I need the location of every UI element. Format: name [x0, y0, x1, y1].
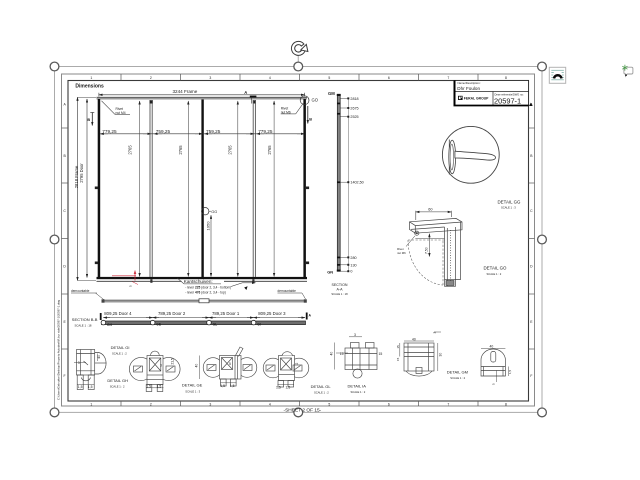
- svg-text:3: 3: [78, 361, 80, 365]
- svg-text:SCALE 1 : 2: SCALE 1 : 2: [487, 272, 502, 276]
- svg-text:8: 8: [505, 402, 507, 406]
- svg-text:2818: 2818: [350, 97, 358, 101]
- svg-text:- lever 476 (door 2, 3,4 - top: - lever 476 (door 2, 3,4 - top): [185, 291, 226, 295]
- svg-text:demountable: demountable: [278, 289, 297, 293]
- svg-text:B: B: [309, 118, 312, 122]
- svg-text:GL: GL: [213, 322, 218, 326]
- svg-text:1: 1: [90, 76, 92, 80]
- svg-text:2: 2: [295, 363, 299, 365]
- svg-text:759,25: 759,25: [156, 129, 171, 134]
- svg-text:3: 3: [209, 76, 211, 80]
- svg-text:SCALE 1 : 2: SCALE 1 : 2: [351, 390, 366, 394]
- svg-text:SCALE 1 : 18: SCALE 1 : 18: [331, 292, 348, 296]
- svg-text:779,25: 779,25: [258, 129, 273, 134]
- svg-text:Dimensions: Dimensions: [75, 83, 104, 89]
- svg-text:C:\Users\Gebruiker\Desktop\Pro: C:\Users\Gebruiker\Desktop\Property Auto…: [57, 299, 61, 400]
- svg-text:4: 4: [269, 402, 271, 406]
- svg-text:DETAIL GE: DETAIL GE: [182, 383, 203, 388]
- svg-text:- lever 225 (door 2, 3,4 - bot: - lever 225 (door 2, 3,4 - bottom): [185, 286, 231, 290]
- svg-text:21,5: 21,5: [171, 358, 175, 364]
- svg-text:3: 3: [354, 333, 356, 337]
- svg-text:A: A: [244, 90, 247, 95]
- svg-text:A-A: A-A: [337, 288, 344, 292]
- svg-text:15: 15: [379, 352, 383, 356]
- svg-text:2765: 2765: [227, 145, 232, 155]
- svg-text:GN: GN: [327, 269, 333, 274]
- svg-text:Dhr Foulon: Dhr Foulon: [457, 86, 480, 91]
- svg-text:Kantschuiven:: Kantschuiven:: [184, 279, 213, 284]
- svg-text:2795 Door: 2795 Door: [79, 163, 84, 183]
- svg-text:DETAIL GG: DETAIL GG: [498, 200, 522, 205]
- svg-text:1,5: 1,5: [78, 385, 83, 389]
- svg-text:7,50: 7,50: [425, 247, 429, 254]
- svg-text:GO: GO: [312, 98, 319, 103]
- svg-text:779,25: 779,25: [102, 129, 117, 134]
- svg-text:SCALE 1 : 2: SCALE 1 : 2: [110, 384, 125, 388]
- svg-text:2765: 2765: [267, 145, 272, 155]
- svg-text:2765: 2765: [178, 145, 183, 155]
- svg-text:DETAIL GO: DETAIL GO: [484, 265, 508, 270]
- svg-text:2525: 2525: [350, 115, 358, 119]
- svg-text:1,5: 1,5: [146, 385, 151, 389]
- svg-text:5: 5: [229, 362, 231, 366]
- svg-text:1402,50: 1402,50: [350, 181, 363, 185]
- svg-text:GE: GE: [156, 322, 162, 326]
- svg-text:60: 60: [428, 208, 432, 212]
- svg-text:nut M6: nut M6: [281, 110, 291, 114]
- svg-text:-SHEET 2 OF 15-: -SHEET 2 OF 15-: [284, 408, 322, 414]
- svg-text:3: 3: [209, 402, 211, 406]
- svg-text:SCALE 1 : 2: SCALE 1 : 2: [450, 376, 465, 380]
- svg-text:4: 4: [269, 76, 271, 80]
- svg-text:SCALE 1 : 2: SCALE 1 : 2: [112, 351, 127, 355]
- svg-text:demountable: demountable: [71, 289, 90, 293]
- svg-text:15: 15: [340, 352, 344, 356]
- svg-text:SECTION B-B: SECTION B-B: [72, 317, 98, 322]
- svg-text:F: F: [530, 374, 532, 378]
- svg-text:1,5: 1,5: [508, 369, 512, 374]
- svg-text:40: 40: [490, 344, 494, 348]
- svg-text:DETAIL GH: DETAIL GH: [107, 378, 128, 383]
- svg-text:15: 15: [396, 345, 400, 349]
- svg-text:3: 3: [433, 332, 437, 334]
- svg-text:6: 6: [388, 402, 390, 406]
- svg-text:SCALE 1 : 3: SCALE 1 : 3: [185, 389, 200, 393]
- svg-text:SECTION: SECTION: [332, 283, 348, 287]
- svg-text:789,25 Door 1: 789,25 Door 1: [212, 311, 240, 316]
- svg-text:40: 40: [330, 352, 334, 356]
- svg-text:7: 7: [447, 402, 449, 406]
- svg-text:SCALE 1 : 3: SCALE 1 : 3: [501, 205, 516, 209]
- svg-text:1050: 1050: [205, 221, 210, 231]
- svg-text:40: 40: [97, 355, 101, 359]
- svg-text:40: 40: [412, 337, 416, 341]
- svg-text:5: 5: [328, 402, 330, 406]
- svg-text:B: B: [87, 118, 90, 122]
- svg-text:DETAIL GI: DETAIL GI: [111, 345, 130, 350]
- svg-text:2: 2: [150, 402, 152, 406]
- svg-text:FERAL GROUP: FERAL GROUP: [464, 97, 489, 101]
- svg-text:3244 Frame: 3244 Frame: [173, 89, 198, 94]
- svg-text:F: F: [64, 374, 66, 378]
- svg-text:GM: GM: [328, 91, 335, 96]
- svg-text:DETAIL GM: DETAIL GM: [447, 369, 468, 374]
- svg-text:nut M6: nut M6: [397, 251, 406, 255]
- svg-text:1,5: 1,5: [230, 384, 235, 388]
- svg-text:759,25: 759,25: [206, 129, 221, 134]
- svg-text:30: 30: [439, 353, 443, 357]
- svg-text:GG: GG: [211, 210, 217, 214]
- svg-text:0: 0: [350, 270, 352, 274]
- svg-text:789,25 Door 2: 789,25 Door 2: [158, 311, 186, 316]
- svg-text:809,25 Door 4: 809,25 Door 4: [104, 311, 132, 316]
- svg-text:2675: 2675: [350, 107, 358, 111]
- svg-text:1,5: 1,5: [88, 385, 93, 389]
- svg-text:GI: GI: [257, 322, 261, 326]
- svg-text:2: 2: [150, 76, 152, 80]
- svg-text:40: 40: [195, 364, 199, 368]
- svg-text:GH: GH: [107, 323, 113, 327]
- svg-text:2818 Frame: 2818 Frame: [74, 165, 79, 188]
- svg-text:8: 8: [505, 76, 507, 80]
- svg-text:3: 3: [160, 364, 162, 368]
- svg-text:6: 6: [388, 76, 390, 80]
- svg-text:280: 280: [350, 256, 356, 260]
- svg-text:5: 5: [328, 76, 330, 80]
- svg-text:1,5: 1,5: [157, 385, 162, 389]
- svg-text:1: 1: [90, 402, 92, 406]
- svg-text:SCALE 1 : 18: SCALE 1 : 18: [75, 323, 92, 327]
- svg-text:1,5: 1,5: [286, 385, 291, 389]
- svg-text:1,5: 1,5: [220, 384, 225, 388]
- svg-text:DETAIL GL: DETAIL GL: [311, 384, 332, 389]
- svg-text:7: 7: [447, 76, 449, 80]
- svg-text:SCALE 1 : 2: SCALE 1 : 2: [314, 391, 329, 395]
- svg-text:DETAIL IA: DETAIL IA: [348, 383, 367, 388]
- svg-text:Name/Description:: Name/Description:: [458, 81, 481, 85]
- svg-text:1,5: 1,5: [276, 385, 281, 389]
- svg-text:nut M4: nut M4: [116, 111, 126, 115]
- svg-text:809,25 Door 3: 809,25 Door 3: [258, 311, 286, 316]
- svg-text:130: 130: [350, 263, 356, 267]
- svg-text:15: 15: [396, 357, 400, 361]
- svg-text:20597-1: 20597-1: [494, 96, 521, 105]
- svg-text:2765: 2765: [128, 145, 133, 155]
